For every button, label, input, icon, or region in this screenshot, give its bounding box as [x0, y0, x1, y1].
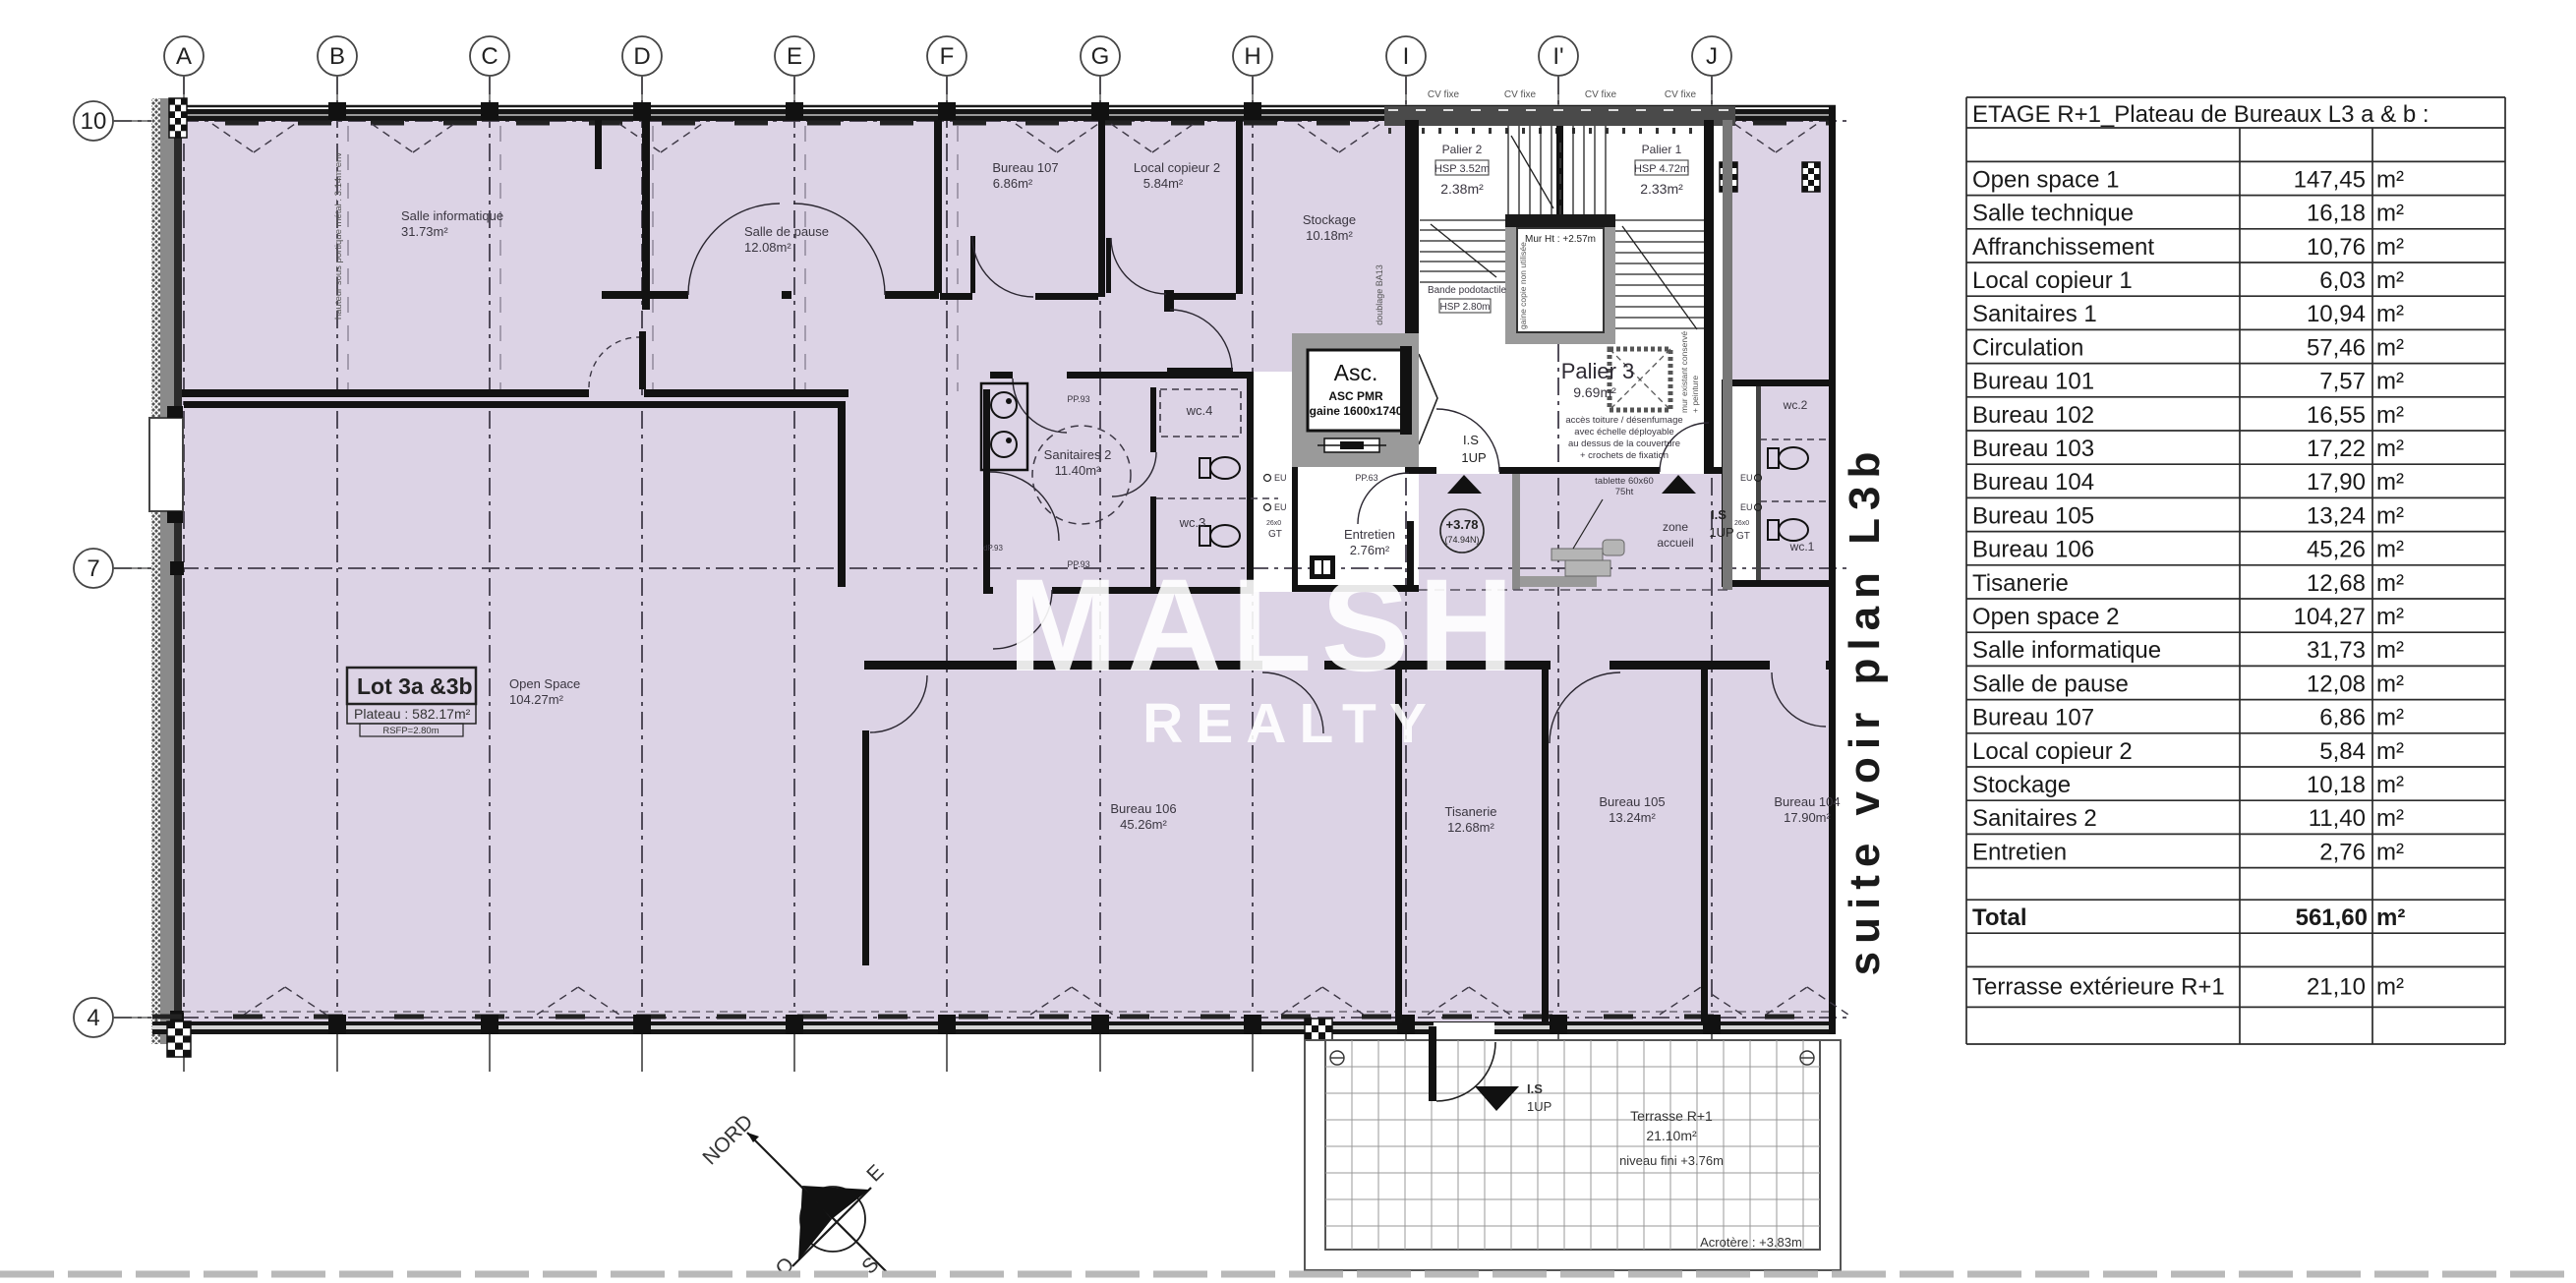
- svg-text:m²: m²: [2376, 671, 2404, 697]
- svg-text:12,08: 12,08: [2307, 671, 2366, 697]
- svg-text:suite voir plan L3b: suite voir plan L3b: [1841, 444, 1889, 976]
- svg-text:wc.4: wc.4: [1186, 403, 1213, 418]
- svg-text:CV fixe: CV fixe: [1428, 89, 1460, 100]
- svg-text:Local copieur 2: Local copieur 2: [1134, 160, 1220, 175]
- svg-text:D: D: [633, 43, 650, 70]
- svg-text:I': I': [1552, 43, 1563, 70]
- svg-text:B: B: [329, 43, 345, 70]
- svg-text:Bande podotactile: Bande podotactile: [1428, 285, 1507, 296]
- svg-text:CV fixe: CV fixe: [1665, 89, 1697, 100]
- svg-text:+ peinture: + peinture: [1690, 376, 1700, 413]
- svg-text:Salle de pause: Salle de pause: [744, 224, 829, 239]
- svg-text:Bureau 104: Bureau 104: [1972, 469, 2094, 496]
- svg-text:m²: m²: [2376, 738, 2404, 765]
- svg-text:zone: zone: [1663, 520, 1688, 534]
- svg-text:m²: m²: [2376, 705, 2404, 731]
- svg-text:m²: m²: [2376, 267, 2404, 294]
- svg-text:12.68m²: 12.68m²: [1447, 820, 1494, 835]
- svg-text:ETAGE R+1_Plateau de Bureaux L: ETAGE R+1_Plateau de Bureaux L3 a & b :: [1972, 101, 2430, 128]
- svg-text:tablette 60x60: tablette 60x60: [1595, 476, 1654, 487]
- svg-text:HSP 3.52m: HSP 3.52m: [1434, 163, 1490, 175]
- svg-text:Asc.: Asc.: [1334, 360, 1378, 385]
- svg-text:10: 10: [81, 108, 107, 135]
- svg-text:Plateau : 582.17m²: Plateau : 582.17m²: [354, 706, 471, 722]
- svg-text:RSFP=2.80m: RSFP=2.80m: [382, 726, 439, 736]
- svg-text:I.S: I.S: [1463, 433, 1479, 447]
- svg-text:5,84: 5,84: [2319, 738, 2366, 765]
- svg-text:17,90: 17,90: [2307, 469, 2366, 496]
- svg-text:Mur Ht : +2.57m: Mur Ht : +2.57m: [1525, 234, 1596, 245]
- svg-text:12.08m²: 12.08m²: [744, 240, 791, 255]
- svg-text:ASC PMR: ASC PMR: [1328, 389, 1383, 403]
- svg-text:11.40m²: 11.40m²: [1055, 463, 1101, 478]
- svg-text:m²: m²: [2376, 772, 2404, 798]
- svg-text:gaine copie non utilisée: gaine copie non utilisée: [1518, 242, 1528, 329]
- svg-text:m²: m²: [2376, 369, 2404, 395]
- svg-text:PP.63: PP.63: [1355, 473, 1377, 483]
- svg-text:EU: EU: [1274, 473, 1287, 483]
- svg-text:Tisanerie: Tisanerie: [1445, 804, 1497, 819]
- svg-text:Bureau 102: Bureau 102: [1972, 402, 2094, 429]
- svg-text:m²: m²: [2376, 537, 2404, 563]
- svg-text:7,57: 7,57: [2319, 369, 2366, 395]
- svg-text:HSP 2.80m: HSP 2.80m: [1440, 302, 1491, 313]
- svg-text:m²: m²: [2376, 402, 2404, 429]
- svg-text:Open Space: Open Space: [509, 676, 580, 691]
- svg-text:147,45: 147,45: [2294, 166, 2366, 193]
- svg-text:G: G: [1091, 43, 1110, 70]
- svg-text:45,26: 45,26: [2307, 537, 2366, 563]
- svg-text:Bureau 106: Bureau 106: [1110, 801, 1176, 816]
- svg-text:Bureau 107: Bureau 107: [992, 160, 1058, 175]
- svg-text:EU: EU: [1740, 502, 1753, 512]
- svg-text:Open space 1: Open space 1: [1972, 166, 2119, 193]
- svg-text:gaine 1600x1740: gaine 1600x1740: [1310, 404, 1403, 418]
- svg-text:PP.93: PP.93: [1067, 394, 1089, 404]
- svg-text:45.26m²: 45.26m²: [1120, 817, 1167, 832]
- svg-text:2,76: 2,76: [2319, 839, 2366, 865]
- svg-text:dP.93: dP.93: [983, 544, 1003, 553]
- svg-text:E: E: [787, 43, 802, 70]
- svg-text:wc.1: wc.1: [1789, 540, 1815, 554]
- svg-text:CV fixe: CV fixe: [1504, 89, 1537, 100]
- svg-text:7: 7: [87, 555, 99, 582]
- svg-text:13,24: 13,24: [2307, 502, 2366, 529]
- svg-text:Salle informatique: Salle informatique: [401, 208, 503, 223]
- svg-text:Circulation: Circulation: [1972, 334, 2083, 361]
- svg-text:au dessus de la couverture: au dessus de la couverture: [1568, 438, 1680, 449]
- svg-text:561,60: 561,60: [2296, 904, 2368, 931]
- svg-text:m²: m²: [2376, 570, 2404, 597]
- svg-text:m²: m²: [2376, 166, 2404, 193]
- svg-text:m²: m²: [2376, 604, 2404, 630]
- svg-text:avec échelle déployable: avec échelle déployable: [1574, 427, 1673, 437]
- svg-text:Palier 1: Palier 1: [1642, 143, 1682, 156]
- svg-text:104,27: 104,27: [2294, 604, 2366, 630]
- svg-text:Bureau 105: Bureau 105: [1599, 794, 1665, 809]
- svg-text:Lot 3a &3b: Lot 3a &3b: [357, 673, 473, 699]
- svg-text:17.90m²: 17.90m²: [1784, 810, 1831, 825]
- svg-text:Sanitaires 1: Sanitaires 1: [1972, 301, 2097, 327]
- svg-text:Sanitaires 2: Sanitaires 2: [1044, 447, 1112, 462]
- svg-text:accès toiture / désenfumage: accès toiture / désenfumage: [1565, 415, 1682, 426]
- svg-text:I: I: [1403, 43, 1410, 70]
- svg-text:Tisanerie: Tisanerie: [1972, 570, 2069, 597]
- svg-text:m²: m²: [2376, 234, 2404, 261]
- svg-text:REALTY: REALTY: [1142, 692, 1439, 755]
- svg-text:I.S: I.S: [1711, 507, 1727, 522]
- svg-text:1UP: 1UP: [1461, 450, 1486, 465]
- svg-text:Bureau 103: Bureau 103: [1972, 436, 2094, 462]
- svg-text:GT: GT: [1268, 529, 1282, 540]
- svg-text:m²: m²: [2376, 805, 2404, 832]
- svg-text:m²: m²: [2376, 436, 2404, 462]
- svg-text:Entretien: Entretien: [1972, 839, 2067, 865]
- svg-text:Bureau 104: Bureau 104: [1774, 794, 1840, 809]
- svg-text:Bureau 105: Bureau 105: [1972, 502, 2094, 529]
- svg-text:1UP: 1UP: [1709, 525, 1733, 540]
- svg-text:Stockage: Stockage: [1972, 772, 2071, 798]
- svg-text:Local copieur 2: Local copieur 2: [1972, 738, 2133, 765]
- svg-text:6,86: 6,86: [2319, 705, 2366, 731]
- svg-text:F: F: [940, 43, 955, 70]
- svg-text:26x0: 26x0: [1266, 520, 1281, 527]
- svg-text:(74.94N): (74.94N): [1444, 535, 1479, 545]
- svg-text:EU: EU: [1274, 502, 1287, 512]
- svg-text:26x0: 26x0: [1734, 520, 1749, 527]
- svg-text:Bureau 101: Bureau 101: [1972, 369, 2094, 395]
- svg-text:C: C: [481, 43, 498, 70]
- svg-text:Local copieur 1: Local copieur 1: [1972, 267, 2133, 294]
- svg-text:I.S: I.S: [1527, 1081, 1543, 1096]
- svg-text:EU: EU: [1740, 473, 1753, 483]
- svg-text:niveau fini +3.76m: niveau fini +3.76m: [1619, 1153, 1724, 1168]
- svg-text:75ht: 75ht: [1615, 487, 1634, 497]
- svg-text:+ crochets de fixation: + crochets de fixation: [1580, 450, 1669, 461]
- svg-text:10,76: 10,76: [2307, 234, 2366, 261]
- svg-text:104.27m²: 104.27m²: [509, 692, 564, 707]
- svg-text:m²: m²: [2376, 839, 2404, 865]
- svg-text:Total: Total: [1972, 904, 2027, 931]
- svg-text:Salle de pause: Salle de pause: [1972, 671, 2129, 697]
- svg-text:6.86m²: 6.86m²: [993, 176, 1033, 191]
- svg-text:57,46: 57,46: [2307, 334, 2366, 361]
- svg-text:10.18m²: 10.18m²: [1306, 228, 1353, 243]
- svg-text:CV fixe: CV fixe: [1585, 89, 1617, 100]
- svg-text:wc.3: wc.3: [1179, 515, 1206, 530]
- svg-text:m²: m²: [2376, 904, 2405, 931]
- svg-text:21.10m²: 21.10m²: [1646, 1128, 1697, 1143]
- svg-text:10,94: 10,94: [2307, 301, 2366, 327]
- svg-text:GT: GT: [1736, 531, 1750, 542]
- svg-text:mur existant conservé: mur existant conservé: [1679, 331, 1689, 413]
- svg-text:2.33m²: 2.33m²: [1640, 181, 1683, 197]
- svg-text:MALSH: MALSH: [1008, 553, 1523, 699]
- svg-text:5.84m²: 5.84m²: [1143, 176, 1184, 191]
- svg-text:16,55: 16,55: [2307, 402, 2366, 429]
- svg-text:31.73m²: 31.73m²: [401, 224, 448, 239]
- svg-text:Terrasse extérieure R+1: Terrasse extérieure R+1: [1972, 973, 2225, 1000]
- svg-text:m²: m²: [2376, 502, 2404, 529]
- svg-text:Terrasse R+1: Terrasse R+1: [1630, 1108, 1713, 1124]
- svg-text:17,22: 17,22: [2307, 436, 2366, 462]
- svg-text:accueil: accueil: [1657, 536, 1693, 550]
- svg-text:Palier 3: Palier 3: [1561, 359, 1635, 383]
- svg-text:Sanitaires 2: Sanitaires 2: [1972, 805, 2097, 832]
- svg-text:A: A: [176, 43, 192, 70]
- svg-text:11,40: 11,40: [2309, 805, 2366, 832]
- svg-text:Affranchissement: Affranchissement: [1972, 234, 2154, 261]
- svg-text:wc.2: wc.2: [1783, 398, 1808, 412]
- svg-text:12,68: 12,68: [2307, 570, 2366, 597]
- svg-text:Bureau 107: Bureau 107: [1972, 705, 2094, 731]
- svg-text:6,03: 6,03: [2319, 267, 2366, 294]
- svg-text:m²: m²: [2376, 201, 2404, 227]
- svg-text:m²: m²: [2376, 334, 2404, 361]
- svg-text:m²: m²: [2376, 973, 2404, 1000]
- svg-text:HSP 4.72m: HSP 4.72m: [1634, 163, 1689, 175]
- svg-text:Open space 2: Open space 2: [1972, 604, 2119, 630]
- svg-text:9.69m²: 9.69m²: [1573, 384, 1616, 400]
- svg-text:Bureau 106: Bureau 106: [1972, 537, 2094, 563]
- svg-text:doublage BA13: doublage BA13: [1375, 264, 1384, 325]
- svg-text:4: 4: [87, 1005, 99, 1031]
- svg-text:Salle informatique: Salle informatique: [1972, 637, 2161, 664]
- svg-text:m²: m²: [2376, 301, 2404, 327]
- svg-text:Stockage: Stockage: [1303, 212, 1356, 227]
- svg-text:16,18: 16,18: [2307, 201, 2366, 227]
- svg-text:Palier 2: Palier 2: [1442, 143, 1483, 156]
- svg-text:J: J: [1706, 43, 1718, 70]
- svg-text:1UP: 1UP: [1527, 1099, 1551, 1114]
- svg-text:13.24m²: 13.24m²: [1609, 810, 1656, 825]
- svg-text:Acrotère : +3.83m: Acrotère : +3.83m: [1700, 1235, 1802, 1250]
- svg-text:31,73: 31,73: [2307, 637, 2366, 664]
- svg-text:21,10: 21,10: [2307, 973, 2366, 1000]
- svg-text:Entretien: Entretien: [1344, 527, 1395, 542]
- svg-text:hauteur sous portique métal :: hauteur sous portique métal : 3.14m env: [333, 152, 344, 320]
- svg-text:H: H: [1244, 43, 1260, 70]
- svg-text:10,18: 10,18: [2307, 772, 2366, 798]
- svg-text:2.38m²: 2.38m²: [1440, 181, 1484, 197]
- svg-text:m²: m²: [2376, 637, 2404, 664]
- svg-text:m²: m²: [2376, 469, 2404, 496]
- svg-text:Salle technique: Salle technique: [1972, 201, 2134, 227]
- svg-text:+3.78: +3.78: [1446, 517, 1479, 532]
